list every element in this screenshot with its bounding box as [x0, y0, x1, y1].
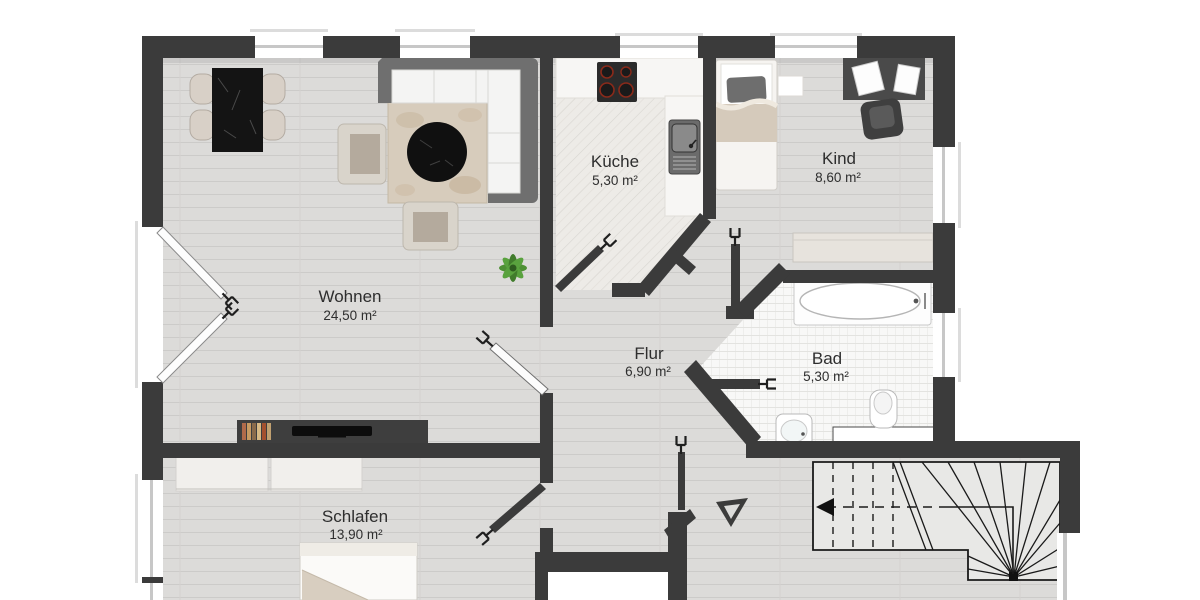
door-kind-leaf — [731, 244, 740, 308]
wall-kueche-kind — [703, 36, 716, 219]
label-schlafen-name: Schlafen — [322, 507, 388, 526]
armchair — [403, 202, 458, 250]
wall-top — [470, 36, 620, 58]
plant-icon — [499, 254, 527, 282]
stove — [597, 62, 637, 102]
label-flur-area: 6,90 m² — [625, 364, 671, 379]
entrance-opening — [548, 572, 668, 600]
window-stair — [1057, 533, 1080, 600]
dining-chair — [190, 74, 215, 104]
dining-chair — [260, 110, 285, 140]
wall-bad-top — [783, 270, 933, 283]
floor-plan-svg: Wohnen 24,50 m² Küche 5,30 m² Kind 8,60 … — [0, 0, 1200, 600]
nightstand — [778, 76, 803, 96]
desk — [843, 58, 925, 100]
wall-right — [933, 36, 955, 147]
dining-chair — [260, 74, 285, 104]
wall-left — [142, 382, 163, 480]
label-flur-name: Flur — [634, 344, 664, 363]
wall-interior-vertical — [540, 528, 553, 554]
window-right — [933, 142, 961, 228]
wall-bottom — [535, 552, 687, 572]
armchair — [338, 124, 386, 184]
bed-schlafen — [300, 543, 417, 600]
wall-right — [933, 223, 955, 313]
window-right — [933, 308, 961, 382]
kitchen-sink — [669, 120, 700, 174]
label-wohnen-area: 24,50 m² — [323, 308, 377, 323]
label-kind-name: Kind — [822, 149, 856, 168]
tv-sideboard — [237, 420, 428, 443]
window-mullion — [142, 577, 163, 583]
sideboard — [793, 233, 933, 262]
label-schlafen-area: 13,90 m² — [329, 527, 383, 542]
window-top — [615, 33, 703, 58]
bathtub — [794, 278, 931, 325]
label-kueche-name: Küche — [591, 152, 639, 171]
label-wohnen-name: Wohnen — [318, 287, 381, 306]
window-top — [250, 29, 328, 58]
toilet — [870, 390, 897, 428]
label-kind-area: 8,60 m² — [815, 170, 861, 185]
coffee-table — [407, 122, 467, 182]
desk-chair — [860, 97, 905, 140]
door-entry-leaf — [678, 452, 685, 510]
wall-stair-top — [746, 441, 1080, 458]
wall-bottom-left-jamb — [535, 570, 548, 600]
window-top — [770, 33, 862, 58]
wall-schlafen-top — [163, 443, 548, 458]
label-bad-area: 5,30 m² — [803, 369, 849, 384]
window-top — [395, 29, 475, 58]
wall-top — [323, 36, 400, 58]
dining-chair — [190, 110, 215, 140]
wall-left — [142, 36, 163, 227]
label-kueche-area: 5,30 m² — [592, 173, 638, 188]
wall-interior-vertical — [540, 58, 553, 327]
label-bad-name: Bad — [812, 349, 842, 368]
wall-interior-vertical — [540, 393, 553, 483]
bed-kind — [716, 60, 777, 190]
floor-plan-canvas: Wohnen 24,50 m² Küche 5,30 m² Kind 8,60 … — [0, 0, 1200, 600]
terrace-door-opening — [135, 221, 163, 388]
dresser — [176, 457, 268, 491]
wall-stair-right — [1060, 441, 1080, 533]
dresser — [271, 457, 362, 491]
door-bad-leaf — [702, 379, 760, 389]
